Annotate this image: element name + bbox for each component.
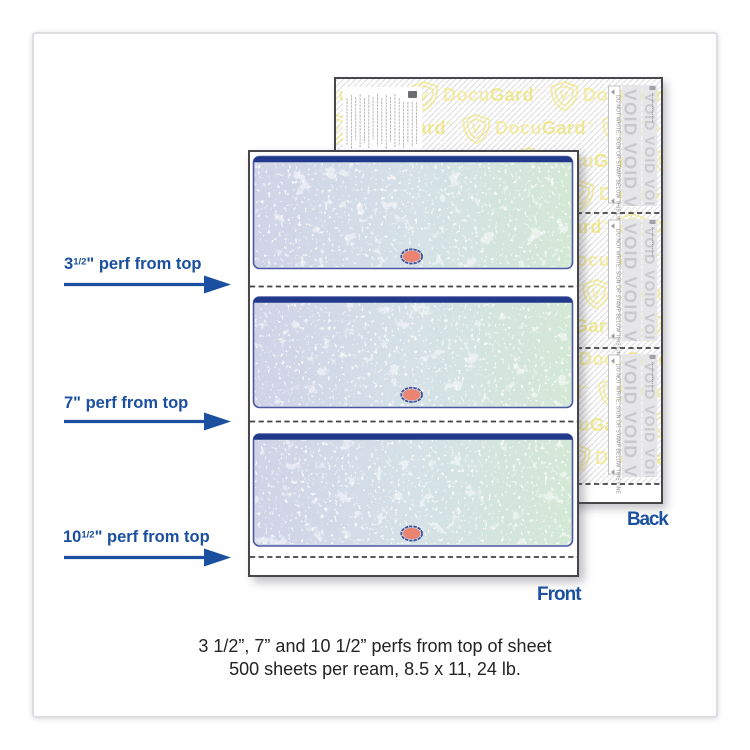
svg-text:VOID VOID VOID: VOID VOID VOID [642, 362, 658, 486]
svg-text:DO NOT WRITE, SIGN OR STAMP BE: DO NOT WRITE, SIGN OR STAMP BELOW THIS L… [615, 95, 621, 225]
svg-text:DO NOT WRITE, SIGN OR STAMP BE: DO NOT WRITE, SIGN OR STAMP BELOW THIS L… [615, 364, 621, 494]
svg-text:VOID VOID VOID: VOID VOID VOID [642, 93, 658, 217]
svg-text:VOID VOID VOID: VOID VOID VOID [642, 227, 658, 351]
svg-text:DO NOT WRITE, SIGN OR STAMP BE: DO NOT WRITE, SIGN OR STAMP BELOW THIS L… [615, 229, 621, 359]
